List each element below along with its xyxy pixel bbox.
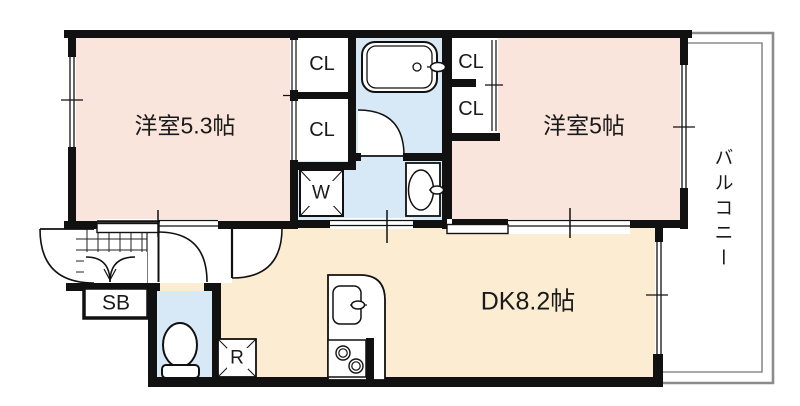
shoebox-doors (84, 252, 147, 283)
toilet-fixture (162, 323, 199, 378)
refrigerator-space (218, 339, 256, 377)
floor-plan-drawing (0, 0, 800, 406)
shoe-box (84, 288, 148, 318)
washing-machine-space (300, 170, 343, 216)
bedroom1-floor (76, 38, 290, 221)
floor-plan: 洋室5.3帖 洋室5帖 DK8.2帖 バルコニー CL CL CL CL W S… (0, 0, 800, 406)
kitchen-unit (328, 275, 385, 381)
washbasin (406, 163, 447, 216)
bathtub (362, 42, 449, 92)
hallway-floor (147, 228, 232, 283)
